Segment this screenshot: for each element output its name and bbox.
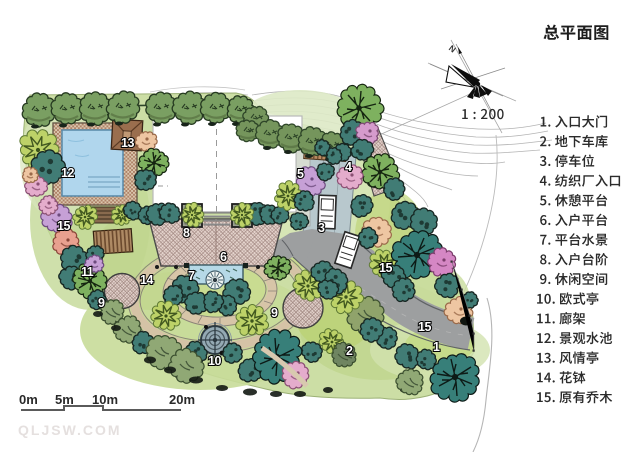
svg-text:7: 7 [188,269,195,283]
svg-text:9: 9 [98,296,105,310]
svg-text:10: 10 [208,354,221,368]
svg-text:4: 4 [345,160,352,174]
svg-text:3: 3 [318,221,325,235]
svg-text:QLJSW.COM: QLJSW.COM [18,422,122,438]
svg-text:15: 15 [418,320,431,334]
svg-text:15: 15 [379,261,392,275]
svg-text:2: 2 [346,344,353,358]
svg-text:8: 8 [183,226,190,240]
svg-text:15: 15 [57,219,70,233]
svg-text:1: 1 [433,340,440,354]
svg-text:9: 9 [271,306,278,320]
svg-text:14: 14 [140,273,153,287]
svg-text:10m: 10m [92,392,118,407]
svg-text:5m: 5m [55,392,74,407]
svg-text:11: 11 [81,265,94,279]
svg-text:12: 12 [61,166,74,180]
svg-text:5: 5 [297,167,304,181]
svg-text:20m: 20m [169,392,195,407]
svg-text:0m: 0m [19,392,38,407]
svg-text:6: 6 [220,250,227,264]
svg-text:13: 13 [121,136,134,150]
